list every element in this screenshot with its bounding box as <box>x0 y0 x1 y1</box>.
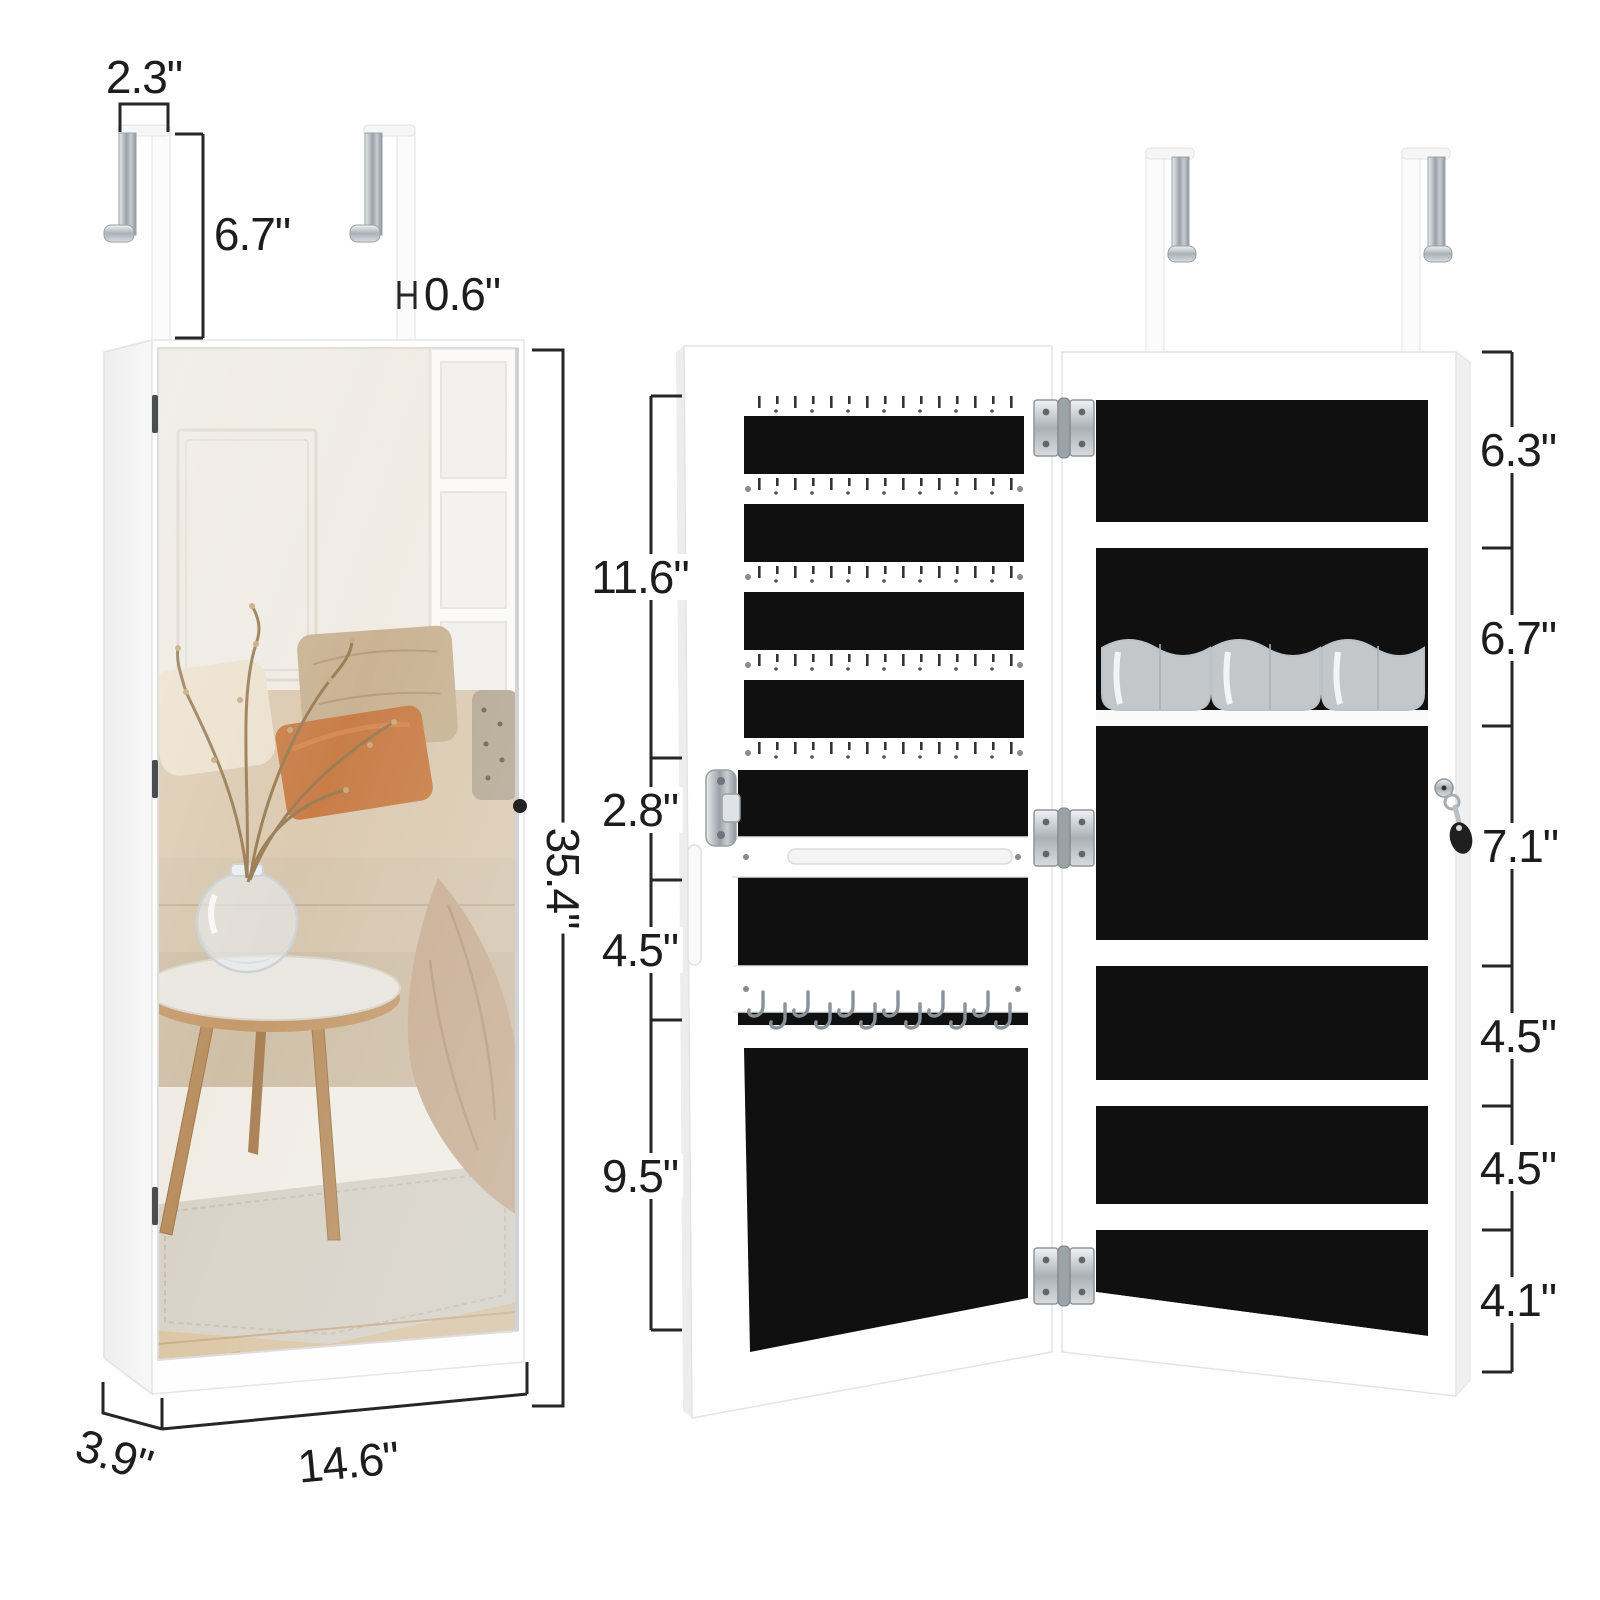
dim-body-section-label: 6.7" <box>1475 615 1561 661</box>
dim-body-section-label: 7.1" <box>1477 823 1563 869</box>
dim-hook-drop-line <box>175 134 203 338</box>
dim-hook-width-label: 2.3" <box>101 54 187 100</box>
dim-door-section-label: 4.5" <box>597 927 683 973</box>
dim-hook-drop-label: 6.7" <box>209 211 295 257</box>
dim-height-label: 35.4" <box>540 823 586 934</box>
cabinet-body <box>1062 148 1476 1396</box>
dim-door-section-label: 11.6" <box>586 554 693 600</box>
dim-body-section-label: 4.5" <box>1475 1145 1561 1191</box>
over-door-hook-icon <box>350 125 415 358</box>
mirror-reflection <box>144 348 518 1360</box>
over-door-hook-icon <box>1402 148 1452 362</box>
bracelet-rail <box>726 837 1034 877</box>
dim-body-section-label: 6.3" <box>1475 427 1561 473</box>
acrylic-bins <box>1096 640 1428 726</box>
open-door <box>676 346 1052 1418</box>
door-catch-icon <box>513 799 527 813</box>
over-door-hook-icon <box>104 125 170 358</box>
dimension-diagram: 2.3" 6.7" 0.6" 35.4" 14.6" 3.9" 11.6" 2.… <box>0 0 1600 1600</box>
dim-body-section-label: 4.5" <box>1475 1013 1561 1059</box>
lock-latch-icon <box>706 770 740 846</box>
mirror-sheen <box>158 348 518 1360</box>
body-side-edge <box>1456 352 1470 1396</box>
dim-door-section-label: 9.5" <box>597 1153 683 1199</box>
cabinet-side-panel <box>104 340 152 1394</box>
dim-width-label: 14.6" <box>291 1434 406 1490</box>
over-door-hook-icon <box>1146 148 1196 362</box>
dim-door-section-label: 2.8" <box>597 787 683 833</box>
door-handle-groove <box>688 845 701 965</box>
dim-hook-thickness-label: 0.6" <box>419 271 505 317</box>
dim-body-section-label: 4.1" <box>1475 1277 1561 1323</box>
